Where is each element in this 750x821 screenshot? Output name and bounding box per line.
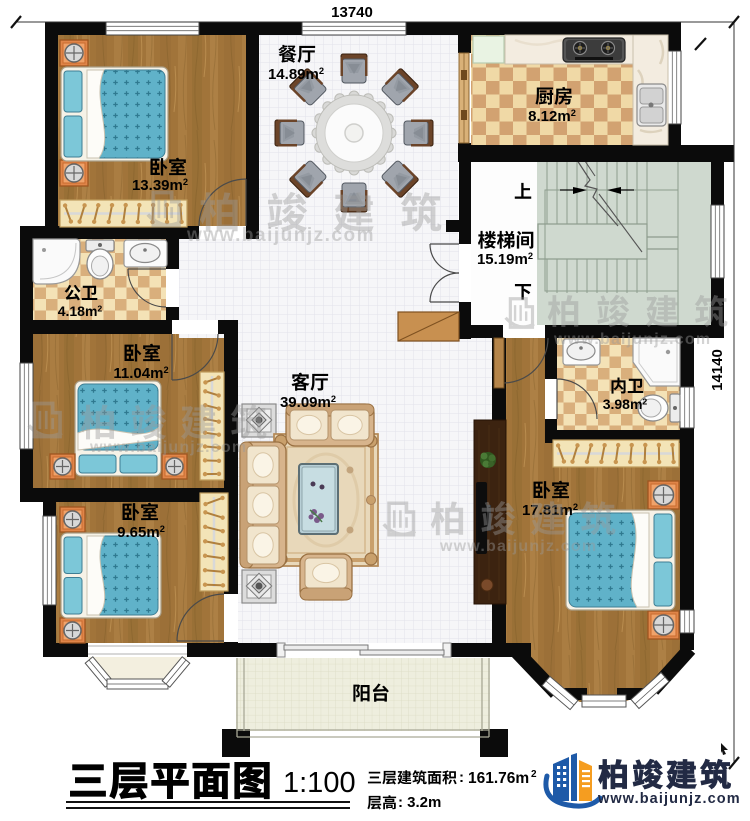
svg-text:2: 2 (531, 769, 537, 780)
svg-text:13740: 13740 (331, 4, 373, 21)
svg-text:14140: 14140 (709, 349, 726, 391)
svg-text:15.19m2: 15.19m2 (477, 251, 533, 268)
svg-text:www.baijunjz.com: www.baijunjz.com (439, 538, 597, 555)
svg-text:9.65m2: 9.65m2 (117, 524, 165, 541)
svg-text::: : (459, 769, 464, 786)
svg-text:39.09m2: 39.09m2 (280, 394, 336, 411)
svg-text:14.89m2: 14.89m2 (268, 66, 324, 83)
svg-text:8.12m2: 8.12m2 (528, 108, 576, 125)
svg-text:11.04m2: 11.04m2 (113, 365, 168, 382)
svg-text:3.98m2: 3.98m2 (603, 396, 648, 412)
svg-text:www.baijunjz.com: www.baijunjz.com (89, 439, 247, 456)
svg-text:4.18m2: 4.18m2 (58, 303, 103, 319)
svg-text:www.baijunjz.com: www.baijunjz.com (597, 791, 741, 807)
svg-text:1:100: 1:100 (283, 767, 356, 799)
svg-text:161.76m: 161.76m (468, 770, 529, 787)
svg-text:: 3.2m: : 3.2m (398, 794, 441, 811)
svg-text:www.baijunjz.com: www.baijunjz.com (553, 331, 711, 348)
svg-text:www.baijunjz.com: www.baijunjz.com (186, 225, 375, 246)
